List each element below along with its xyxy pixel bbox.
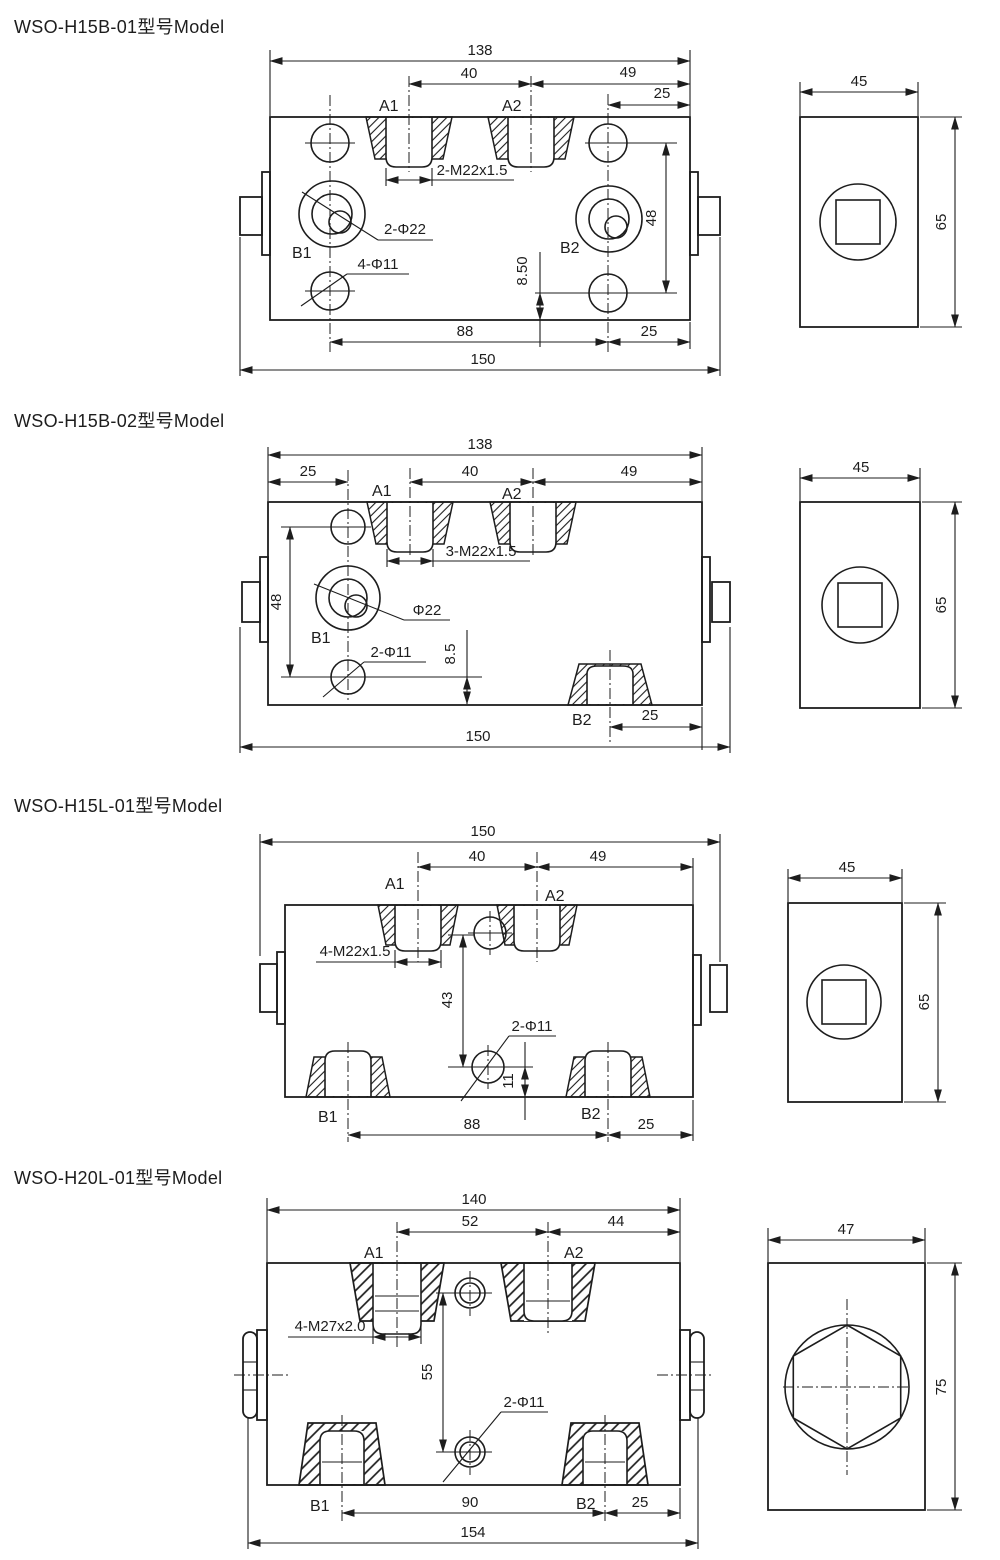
bore-callout: 2-Φ22 [384, 221, 426, 238]
label-b1: B1 [310, 1498, 330, 1515]
thread-callout: 4-M22x1.5 [320, 943, 391, 960]
dim-right: 49 [621, 463, 638, 480]
label-a1: A1 [385, 876, 405, 893]
dim-bottom-right: 25 [632, 1494, 649, 1511]
thread-callout: 2-M22x1.5 [437, 162, 508, 179]
model-4: WSO-H20L-01型号Model [14, 1168, 962, 1549]
dim-right: 49 [590, 848, 607, 865]
label-b2: B2 [560, 240, 580, 257]
dim-top-width: 140 [461, 1191, 486, 1208]
dim-bottom-right: 25 [638, 1116, 655, 1133]
dim-side-width: 45 [853, 459, 870, 476]
port-b1 [299, 181, 365, 247]
side-body-outline [788, 903, 902, 1102]
model-2-title: WSO-H15B-02型号Model [14, 411, 224, 431]
dim-port-span: 40 [461, 65, 478, 82]
label-b1: B1 [311, 630, 331, 647]
left-stub [277, 952, 285, 1024]
thread-callout: 3-M22x1.5 [446, 543, 517, 560]
side-port-circle [822, 567, 898, 643]
dim-port-span: 52 [462, 1213, 479, 1230]
left-stub-outer [260, 964, 277, 1012]
model-4-front-view: 140 52 44 4-M27x2.0 55 2-Φ11 90 25 154 A… [234, 1191, 714, 1549]
dim-left: 25 [300, 463, 317, 480]
model-2-front-view: 138 25 40 49 3-M22x1.5 48 8.5 Φ22 2-Φ11 … [240, 436, 730, 753]
hole-callout: 2-Φ11 [512, 1018, 553, 1035]
label-b1: B1 [318, 1109, 338, 1126]
model-4-side-view: 47 75 [768, 1221, 962, 1510]
model-1: WSO-H15B-01型号Model [14, 17, 962, 376]
right-stub [657, 1330, 714, 1420]
dim-right: 44 [608, 1213, 625, 1230]
valve-drawing-sheet: WSO-H15B-01型号Model [0, 0, 1000, 1560]
center-holes [448, 1271, 492, 1475]
thread-callout: 4-M27x2.0 [295, 1318, 366, 1335]
dim-side-height: 65 [916, 994, 933, 1011]
right-stub-outer [710, 965, 727, 1012]
model-1-title: WSO-H15B-01型号Model [14, 17, 224, 37]
bolt-callout: 2-Φ11 [371, 644, 412, 661]
model-2: WSO-H15B-02型号Model [14, 411, 962, 753]
side-square-socket [822, 980, 866, 1024]
right-stub-outer [712, 582, 730, 622]
right-stub [690, 172, 698, 255]
dim-bottom-right: 25 [642, 707, 659, 724]
dim-bolt-span-v: 48 [643, 210, 660, 227]
model-1-front-view: 138 40 49 25 2-M22x1.5 48 8.50 2-Φ22 4-Φ… [240, 42, 720, 376]
dim-side-height: 75 [933, 1379, 950, 1396]
dim-side-width: 47 [838, 1221, 855, 1238]
dim-edge: 11 [500, 1073, 517, 1089]
model-4-dimensions: 140 52 44 4-M27x2.0 55 2-Φ11 90 25 154 [248, 1191, 698, 1549]
left-stub-outer [242, 582, 260, 622]
label-a1: A1 [364, 1245, 384, 1262]
label-a2: A2 [545, 888, 565, 905]
label-a1: A1 [379, 98, 399, 115]
dim-bottom-span: 88 [457, 323, 474, 340]
dim-bottom-span: 88 [464, 1116, 481, 1133]
left-stub-outer [240, 197, 262, 235]
bore-callout: Φ22 [413, 602, 442, 619]
dim-overall: 150 [470, 351, 495, 368]
left-stub [234, 1330, 288, 1420]
dim-hole-span: 43 [439, 992, 456, 1009]
dim-side-height: 65 [933, 597, 950, 614]
dim-edge: 8.5 [442, 644, 459, 665]
side-port-circle [820, 184, 896, 260]
bolt-callout: 4-Φ11 [358, 256, 399, 273]
right-stub-outer [698, 197, 720, 235]
dim-overall: 150 [465, 728, 490, 745]
dim-top-width: 138 [467, 436, 492, 453]
side-port-circle [807, 965, 881, 1039]
side-square-socket [838, 583, 882, 627]
dim-edge: 8.50 [514, 256, 531, 285]
left-stub [262, 172, 270, 255]
dim-right: 49 [620, 64, 637, 81]
dim-port-span: 40 [462, 463, 479, 480]
side-body-outline [800, 502, 920, 708]
model-3-side-view: 45 65 [788, 859, 946, 1102]
dim-offset: 25 [654, 85, 671, 102]
label-a2: A2 [502, 98, 522, 115]
right-stub [702, 557, 710, 642]
port-b2 [576, 186, 642, 252]
dim-hole-span: 55 [419, 1364, 436, 1381]
model-3-title: WSO-H15L-01型号Model [14, 796, 222, 816]
dim-bottom-span: 90 [462, 1494, 479, 1511]
model-3-front-view: 150 40 49 4-M22x1.5 43 2-Φ11 11 88 25 [260, 823, 727, 1142]
dim-side-height: 65 [933, 214, 950, 231]
dim-overall: 154 [460, 1524, 485, 1541]
model-1-side-view: 45 65 [800, 73, 962, 327]
dim-bolt-span-v: 48 [268, 594, 285, 611]
model-2-side-view: 45 65 [800, 459, 962, 708]
label-b2: B2 [572, 712, 592, 729]
dim-bottom-right: 25 [641, 323, 658, 340]
side-square-socket [836, 200, 880, 244]
model-4-title: WSO-H20L-01型号Model [14, 1168, 222, 1188]
dim-top-width: 150 [470, 823, 495, 840]
label-b1: B1 [292, 245, 312, 262]
label-a1: A1 [372, 483, 392, 500]
label-a2: A2 [502, 486, 522, 503]
label-b2: B2 [576, 1496, 596, 1513]
side-body-outline [800, 117, 918, 327]
hole-callout: 2-Φ11 [504, 1394, 545, 1411]
dim-side-width: 45 [839, 859, 856, 876]
label-a2: A2 [564, 1245, 584, 1262]
right-stub [693, 955, 701, 1025]
dim-side-width: 45 [851, 73, 868, 90]
dim-top-width: 138 [467, 42, 492, 59]
left-stub [260, 557, 268, 642]
model-3: WSO-H15L-01型号Model [14, 796, 946, 1142]
dim-port-span: 40 [469, 848, 486, 865]
label-b2: B2 [581, 1106, 601, 1123]
